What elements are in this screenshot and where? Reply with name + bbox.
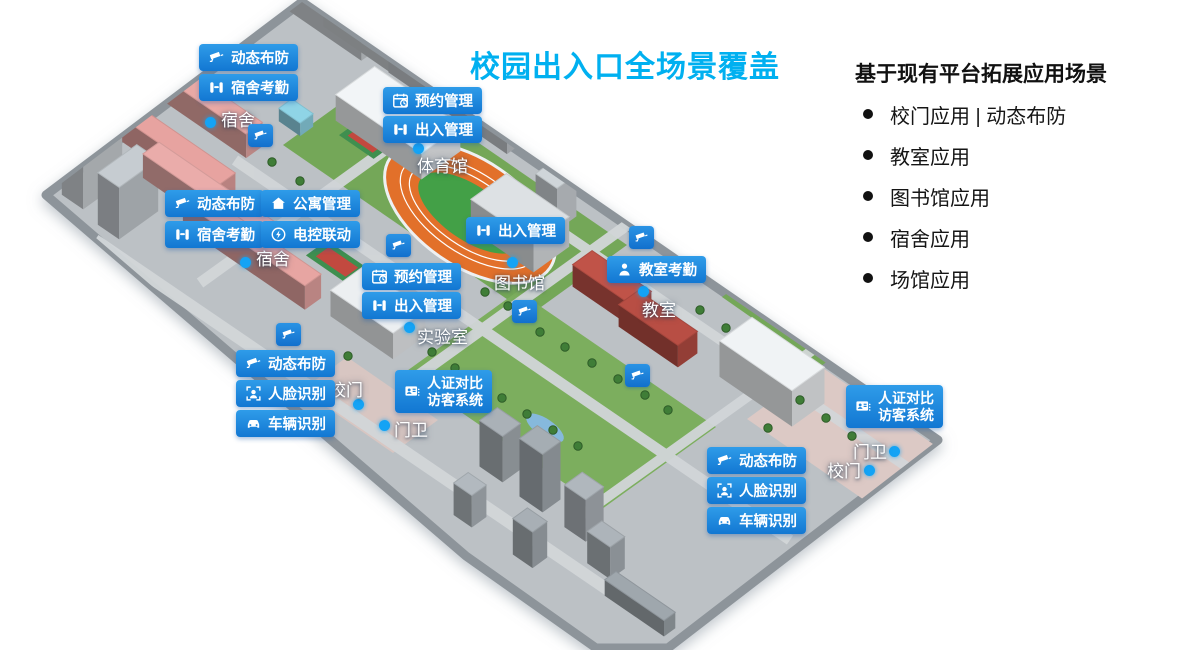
list-item-dorm-app: 宿舍应用	[855, 224, 1175, 250]
cctv-camera-icon	[716, 452, 733, 469]
cctv-camera-icon	[253, 128, 268, 143]
badge-label: 教室考勤	[639, 259, 697, 280]
label-laboratory: 实验室	[417, 323, 468, 348]
badge-access-gym: 出入管理	[383, 116, 482, 143]
turnstile-icon	[392, 121, 409, 138]
home-icon	[270, 195, 287, 212]
cctv-camera-icon	[630, 368, 645, 383]
turnstile-icon	[208, 79, 225, 96]
applications-panel: 基于现有平台拓展应用场景 校门应用 | 动态布防 教室应用 图书馆应用 宿舍应用…	[855, 63, 1175, 306]
location-dot	[507, 257, 518, 268]
turnstile-icon	[371, 297, 388, 314]
applications-list: 校门应用 | 动态布防 教室应用 图书馆应用 宿舍应用 场馆应用	[855, 101, 1175, 291]
id-card-icon	[404, 383, 421, 400]
badge-visitor-system-west: 人证对比访客系统	[395, 370, 492, 413]
badge-label: 公寓管理	[293, 193, 351, 214]
cctv-camera-icon	[245, 355, 262, 372]
badge-label: 动态布防	[231, 47, 289, 68]
face-icon	[245, 385, 262, 402]
cctv-camera-icon	[174, 195, 191, 212]
cctv-camera-mini-badge	[276, 323, 301, 346]
location-dot	[240, 257, 251, 268]
cctv-camera-icon	[716, 452, 733, 469]
cctv-camera-mini-badge	[248, 124, 273, 147]
cctv-camera-icon	[634, 230, 649, 245]
badge-label: 动态布防	[739, 450, 797, 471]
badge-vehicle-recognition-west: 车辆识别	[236, 410, 335, 437]
home-icon	[270, 195, 287, 212]
car-icon	[245, 415, 262, 432]
cctv-camera-icon	[517, 304, 532, 319]
badge-dorm-attendance-north: 宿舍考勤	[199, 74, 298, 101]
badge-dorm-attendance-west: 宿舍考勤	[165, 221, 264, 248]
badge-apartment-management: 公寓管理	[261, 190, 360, 217]
car-icon	[716, 512, 733, 529]
cctv-camera-mini-badge	[386, 234, 411, 257]
id-card-icon	[404, 383, 421, 400]
bullet-icon	[863, 273, 873, 283]
label-classroom: 教室	[642, 296, 676, 321]
badge-face-recognition-east: 人脸识别	[707, 477, 806, 504]
badge-dynamic-defense-gate-east: 动态布防	[707, 447, 806, 474]
turnstile-icon	[475, 222, 492, 239]
label-library: 图书馆	[494, 269, 545, 294]
person-icon	[616, 261, 633, 278]
calendar-clock-icon	[371, 268, 388, 285]
badge-label: 预约管理	[394, 266, 452, 287]
badge-label: 人脸识别	[268, 383, 326, 404]
calendar-clock-icon	[371, 268, 388, 285]
badge-label: 出入管理	[415, 119, 473, 140]
cctv-camera-icon	[174, 195, 191, 212]
badge-label: 人证对比访客系统	[427, 375, 483, 408]
badge-label: 人脸识别	[739, 480, 797, 501]
badge-access-library: 出入管理	[466, 217, 565, 244]
calendar-clock-icon	[392, 92, 409, 109]
label-gymnasium: 体育馆	[417, 152, 468, 177]
power-icon	[270, 226, 287, 243]
badge-label: 人证对比访客系统	[878, 390, 934, 423]
face-icon	[245, 385, 262, 402]
badge-face-recognition-west: 人脸识别	[236, 380, 335, 407]
turnstile-icon	[371, 297, 388, 314]
bullet-icon	[863, 150, 873, 160]
list-item-classroom-app: 教室应用	[855, 142, 1175, 168]
bullet-icon	[863, 191, 873, 201]
badge-reservation-gym: 预约管理	[383, 87, 482, 114]
cctv-camera-icon	[208, 49, 225, 66]
badge-label: 宿舍考勤	[231, 77, 289, 98]
badge-dynamic-defense-dorm-west: 动态布防	[165, 190, 264, 217]
turnstile-icon	[475, 222, 492, 239]
list-item-venue-app: 场馆应用	[855, 265, 1175, 291]
badge-classroom-attendance: 教室考勤	[607, 256, 706, 283]
face-icon	[716, 482, 733, 499]
location-dot	[379, 420, 390, 431]
cctv-camera-icon	[391, 238, 406, 253]
bullet-icon	[863, 109, 873, 119]
turnstile-icon	[208, 79, 225, 96]
badge-label: 车辆识别	[268, 413, 326, 434]
person-icon	[616, 261, 633, 278]
label-school-gate-east: 校门	[827, 457, 861, 482]
label-dorm-west: 宿舍	[256, 245, 290, 270]
turnstile-icon	[174, 226, 191, 243]
badge-label: 出入管理	[498, 220, 556, 241]
badge-label: 动态布防	[268, 353, 326, 374]
page-title: 校园出入口全场景覆盖	[470, 42, 780, 86]
badge-label: 电控联动	[293, 224, 351, 245]
face-icon	[716, 482, 733, 499]
badge-label: 车辆识别	[739, 510, 797, 531]
panel-heading: 基于现有平台拓展应用场景	[855, 63, 1175, 87]
badge-vehicle-recognition-east: 车辆识别	[707, 507, 806, 534]
location-dot	[205, 117, 216, 128]
location-dot	[864, 465, 875, 476]
cctv-camera-mini-badge	[512, 300, 537, 323]
list-item-gate-app: 校门应用 | 动态布防	[855, 101, 1175, 127]
badge-reservation-lab: 预约管理	[362, 263, 461, 290]
badge-visitor-system-east: 人证对比访客系统	[846, 385, 943, 428]
location-dot	[404, 322, 415, 333]
id-card-icon	[855, 398, 872, 415]
id-card-icon	[855, 398, 872, 415]
badge-label: 出入管理	[394, 295, 452, 316]
cctv-camera-mini-badge	[629, 226, 654, 249]
badge-electric-control-linkage: 电控联动	[261, 221, 360, 248]
badge-access-lab: 出入管理	[362, 292, 461, 319]
cctv-camera-icon	[281, 327, 296, 342]
calendar-clock-icon	[392, 92, 409, 109]
cctv-camera-mini-badge	[625, 364, 650, 387]
location-dot	[889, 446, 900, 457]
bullet-icon	[863, 232, 873, 242]
badge-dynamic-defense-gate-west: 动态布防	[236, 350, 335, 377]
campus-coverage-slide: 校园出入口全场景覆盖 基于现有平台拓展应用场景 校门应用 | 动态布防 教室应用…	[0, 0, 1180, 650]
badge-dynamic-defense-dorm-north: 动态布防	[199, 44, 298, 71]
car-icon	[245, 415, 262, 432]
car-icon	[716, 512, 733, 529]
label-guard-west: 门卫	[394, 416, 428, 441]
list-item-library-app: 图书馆应用	[855, 183, 1175, 209]
badge-label: 宿舍考勤	[197, 224, 255, 245]
turnstile-icon	[392, 121, 409, 138]
cctv-camera-icon	[208, 49, 225, 66]
badge-label: 动态布防	[197, 193, 255, 214]
cctv-camera-icon	[245, 355, 262, 372]
turnstile-icon	[174, 226, 191, 243]
power-icon	[270, 226, 287, 243]
badge-label: 预约管理	[415, 90, 473, 111]
